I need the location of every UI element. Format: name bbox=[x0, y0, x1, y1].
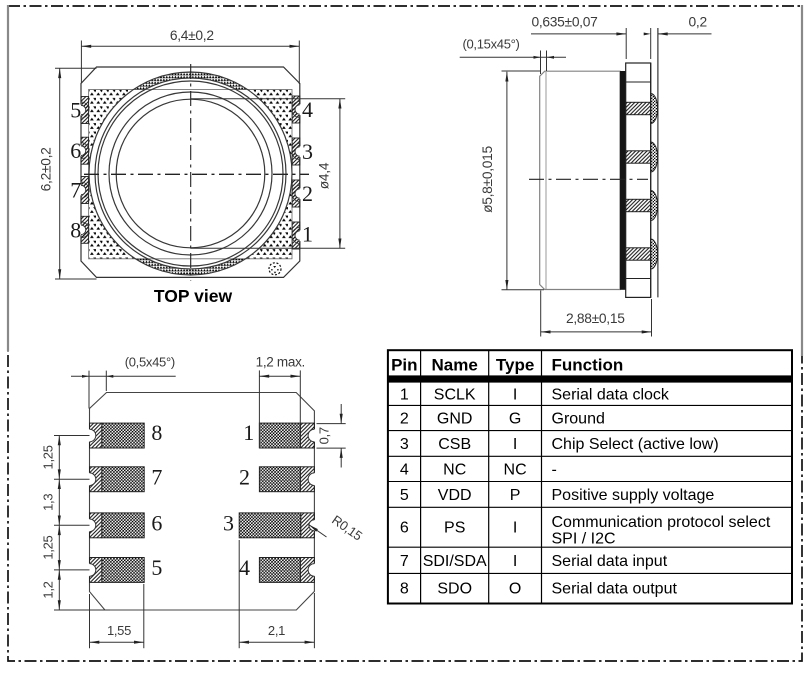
svg-text:7: 7 bbox=[400, 553, 409, 570]
svg-text:2,88±0,15: 2,88±0,15 bbox=[566, 311, 625, 326]
svg-text:2: 2 bbox=[302, 181, 313, 206]
svg-text:1,3: 1,3 bbox=[40, 494, 55, 511]
svg-text:6,4±0,2: 6,4±0,2 bbox=[170, 28, 214, 43]
svg-text:O: O bbox=[509, 581, 521, 598]
svg-text:G: G bbox=[509, 411, 521, 428]
svg-text:1: 1 bbox=[302, 221, 313, 246]
svg-text:1,2 max.: 1,2 max. bbox=[256, 355, 305, 370]
svg-text:4: 4 bbox=[239, 555, 250, 580]
svg-text:4: 4 bbox=[302, 97, 313, 122]
svg-text:(0,15x45°): (0,15x45°) bbox=[462, 36, 519, 51]
svg-text:(0,5x45°): (0,5x45°) bbox=[125, 355, 175, 370]
svg-text:NC: NC bbox=[443, 462, 466, 479]
svg-text:1: 1 bbox=[400, 387, 409, 404]
svg-text:SPI / I2C: SPI / I2C bbox=[552, 531, 616, 548]
svg-text:Pin: Pin bbox=[391, 355, 417, 374]
svg-text:ø5,8±0,015: ø5,8±0,015 bbox=[480, 146, 495, 213]
svg-text:3: 3 bbox=[223, 511, 234, 536]
svg-text:Serial data input: Serial data input bbox=[552, 553, 668, 570]
svg-text:SCLK: SCLK bbox=[434, 387, 476, 404]
svg-text:6: 6 bbox=[70, 138, 81, 163]
svg-text:P: P bbox=[510, 487, 521, 504]
svg-text:8: 8 bbox=[70, 217, 81, 242]
svg-text:Function: Function bbox=[552, 355, 624, 374]
svg-text:CSB: CSB bbox=[438, 436, 471, 453]
svg-text:3: 3 bbox=[400, 436, 409, 453]
svg-text:6: 6 bbox=[151, 511, 162, 536]
svg-text:TOP view: TOP view bbox=[154, 286, 233, 306]
svg-text:1,2: 1,2 bbox=[40, 581, 55, 598]
svg-text:2,1: 2,1 bbox=[268, 623, 285, 638]
svg-text:Type: Type bbox=[496, 355, 534, 374]
svg-text:SDO: SDO bbox=[437, 581, 472, 598]
svg-text:Communication protocol select: Communication protocol select bbox=[552, 514, 771, 531]
svg-text:8: 8 bbox=[400, 581, 409, 598]
svg-text:PS: PS bbox=[444, 520, 465, 537]
svg-text:NC: NC bbox=[504, 462, 527, 479]
svg-text:6: 6 bbox=[400, 520, 409, 537]
svg-text:VDD: VDD bbox=[438, 487, 472, 504]
svg-text:3: 3 bbox=[302, 139, 313, 164]
svg-text:Ground: Ground bbox=[552, 411, 605, 428]
svg-text:0,7: 0,7 bbox=[316, 427, 331, 444]
svg-text:2: 2 bbox=[239, 464, 250, 489]
svg-text:7: 7 bbox=[70, 178, 81, 203]
svg-text:1,55: 1,55 bbox=[107, 623, 131, 638]
svg-text:5: 5 bbox=[400, 487, 409, 504]
svg-text:Positive supply voltage: Positive supply voltage bbox=[552, 487, 715, 504]
svg-text:8: 8 bbox=[151, 420, 162, 445]
svg-text:I: I bbox=[513, 387, 517, 404]
svg-text:5: 5 bbox=[70, 98, 81, 123]
svg-text:ø4,4: ø4,4 bbox=[317, 162, 332, 189]
svg-text:2: 2 bbox=[400, 411, 409, 428]
svg-text:4: 4 bbox=[400, 462, 409, 479]
svg-text:1,25: 1,25 bbox=[40, 535, 55, 559]
svg-text:0,2: 0,2 bbox=[689, 14, 707, 29]
svg-text:5: 5 bbox=[151, 555, 162, 580]
svg-text:I: I bbox=[513, 436, 517, 453]
svg-text:SDI/SDA: SDI/SDA bbox=[423, 553, 487, 570]
svg-text:Name: Name bbox=[432, 355, 478, 374]
svg-text:Serial data clock: Serial data clock bbox=[552, 387, 670, 404]
svg-text:6,2±0,2: 6,2±0,2 bbox=[39, 147, 54, 191]
svg-text:GND: GND bbox=[437, 411, 473, 428]
svg-text:I: I bbox=[513, 553, 517, 570]
svg-text:1,25: 1,25 bbox=[40, 445, 55, 469]
svg-text:7: 7 bbox=[151, 464, 162, 489]
svg-text:I: I bbox=[513, 520, 517, 537]
svg-text:1: 1 bbox=[243, 420, 254, 445]
svg-text:0,635±0,07: 0,635±0,07 bbox=[532, 14, 598, 29]
svg-text:-: - bbox=[552, 462, 557, 479]
svg-text:Chip Select (active low): Chip Select (active low) bbox=[552, 436, 719, 453]
svg-text:Serial data output: Serial data output bbox=[552, 581, 678, 598]
